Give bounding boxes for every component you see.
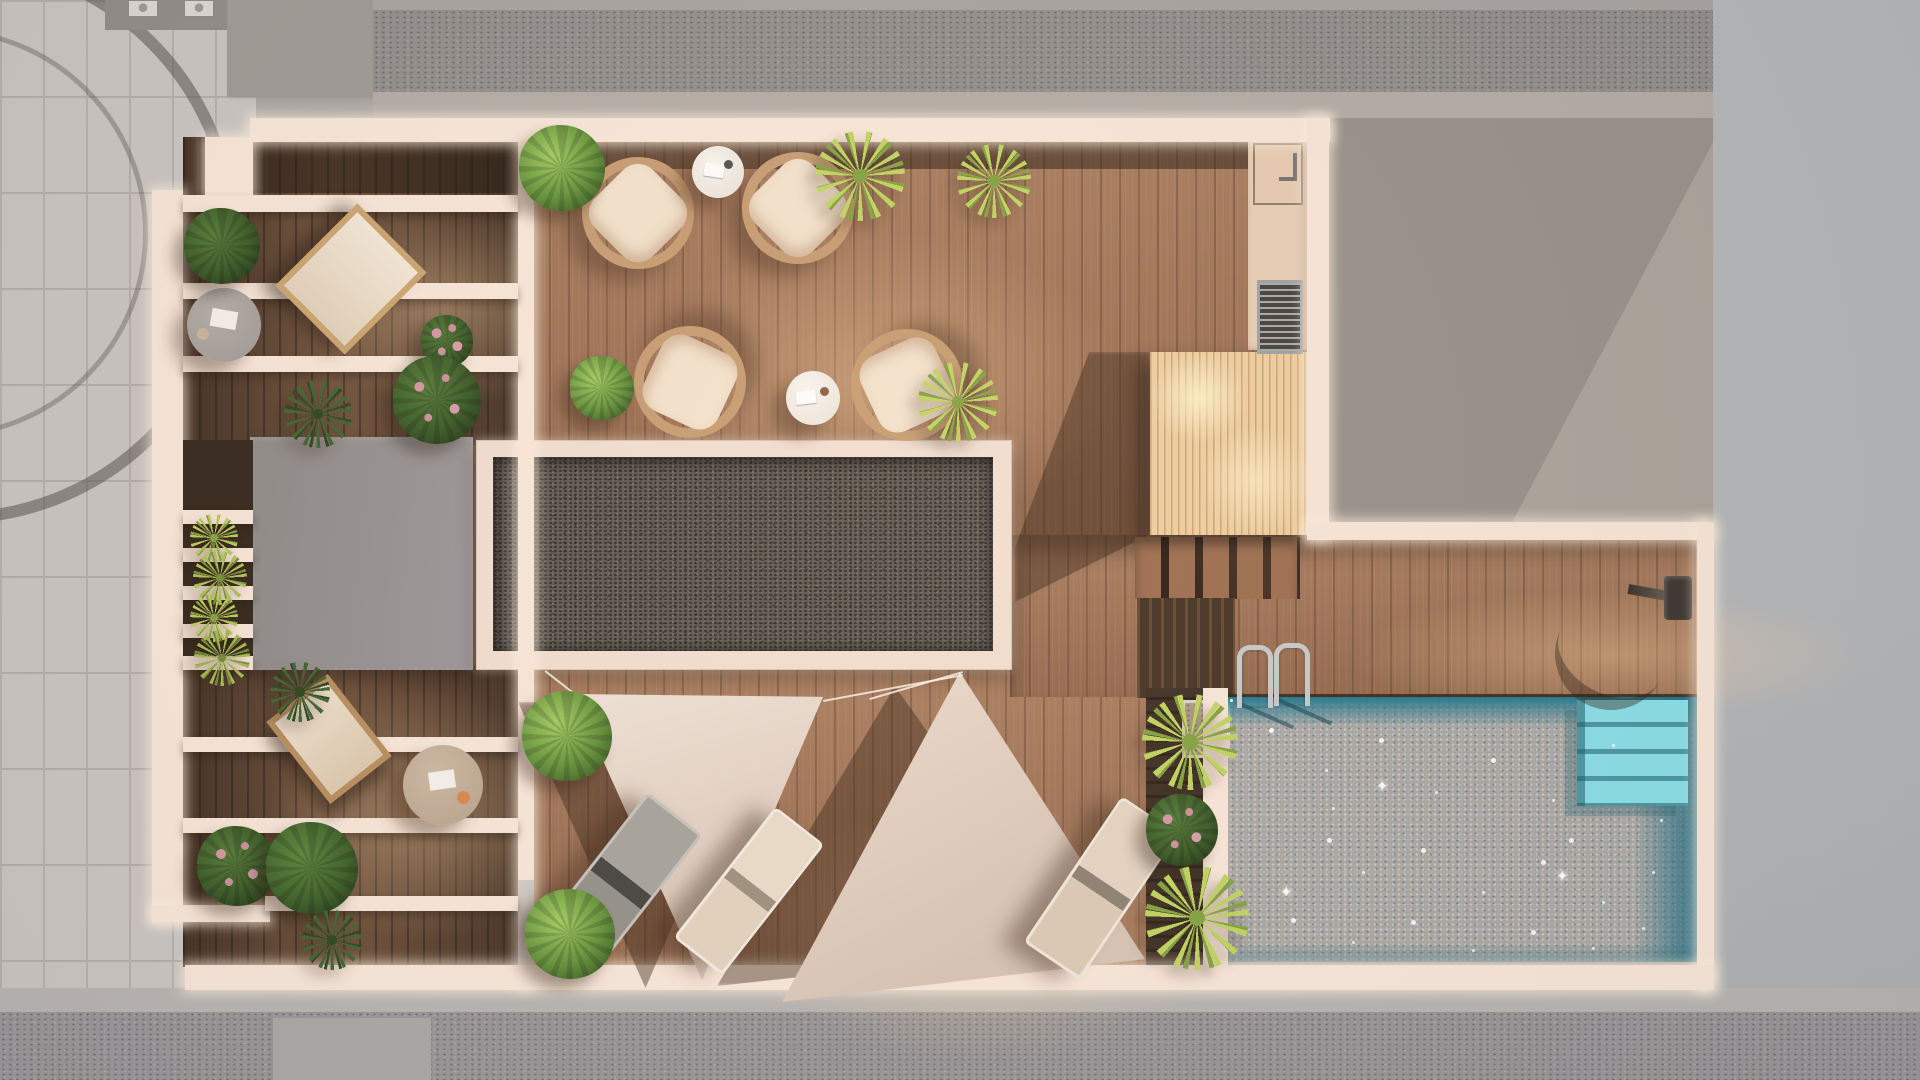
topright-building <box>1327 118 1713 522</box>
plant-bush <box>522 691 612 781</box>
stair-enclosure-roof <box>250 437 473 670</box>
gray-round-table <box>187 288 261 362</box>
pool-ladder-rail <box>1274 643 1310 706</box>
magazine <box>795 390 816 405</box>
balcony-wing-darkband <box>253 141 518 193</box>
ac-unit <box>128 0 158 17</box>
plant-roses <box>1146 794 1218 866</box>
plant-fern <box>302 910 362 970</box>
plant-bush <box>570 356 634 420</box>
sink-faucet-icon <box>1279 177 1297 181</box>
pool-deep-band-bottom <box>1228 944 1697 962</box>
magazine <box>703 163 725 179</box>
topright-building-sunlit <box>1327 118 1713 522</box>
orange-dish <box>457 791 470 804</box>
plant-roses <box>197 826 277 906</box>
book <box>428 769 456 790</box>
deck-slat-walk <box>1137 598 1235 698</box>
plant-bush <box>525 889 615 979</box>
plant-palm-yellow <box>815 131 905 221</box>
plant-leafy <box>184 208 260 284</box>
plant-roses <box>393 356 481 444</box>
inner-wall <box>518 141 534 987</box>
outdoor-shower-head <box>1664 576 1692 620</box>
pool-wall-right <box>1697 522 1714 990</box>
terrace-wall-right-upper <box>1307 118 1329 538</box>
kitchen-grill <box>1257 280 1303 354</box>
sidewalk <box>0 988 1920 1014</box>
pool-deck-wall-top <box>1307 522 1712 540</box>
bowl <box>197 328 209 340</box>
neighbor-block-b <box>227 0 373 97</box>
plant-yucca <box>1145 866 1249 970</box>
pool-sparkle-star: ✦ <box>1376 777 1389 795</box>
plant-palm-yellow <box>918 362 998 442</box>
pergola-platform <box>1150 352 1312 535</box>
plant-palm-yellow <box>957 144 1031 218</box>
beige-round-table <box>403 745 483 825</box>
rooftop-terrace-render: ✦ ✦ ✦ <box>0 0 1920 1080</box>
pool-sparkles <box>1230 699 1233 702</box>
skylight-glass <box>493 457 993 651</box>
top-roof-frame <box>373 92 1783 120</box>
kitchen-sink <box>1253 143 1303 205</box>
swimming-pool: ✦ ✦ ✦ <box>1228 697 1697 962</box>
street-patch <box>273 1018 431 1080</box>
pool-corner-steps <box>1577 700 1688 806</box>
plant-palm-dark <box>284 380 352 448</box>
ac-unit <box>184 0 214 17</box>
terrace-wall-topleft-step <box>205 137 253 197</box>
terrace-wall-top <box>250 118 1330 142</box>
pool-sparkle-star: ✦ <box>1280 883 1293 901</box>
wing-wall-bottom-left <box>152 905 270 922</box>
book <box>210 308 239 330</box>
pool-sparkle-star: ✦ <box>1556 867 1569 885</box>
stairs-to-pool-deck <box>1135 537 1300 599</box>
plant-yucca <box>194 630 250 686</box>
white-side-table <box>692 146 744 198</box>
terrace-wall-left <box>152 190 183 922</box>
plant-fern <box>270 662 330 722</box>
white-side-table <box>786 371 840 425</box>
plant-leafy <box>266 822 358 914</box>
top-roof-gravel <box>373 10 1745 94</box>
coffee-cup <box>820 387 829 396</box>
plant-bush <box>519 125 605 211</box>
right-building-roof <box>1713 0 1920 1080</box>
plant-yucca <box>1142 694 1238 790</box>
pool-ladder-rail <box>1237 645 1273 708</box>
coffee-cup <box>724 160 733 169</box>
